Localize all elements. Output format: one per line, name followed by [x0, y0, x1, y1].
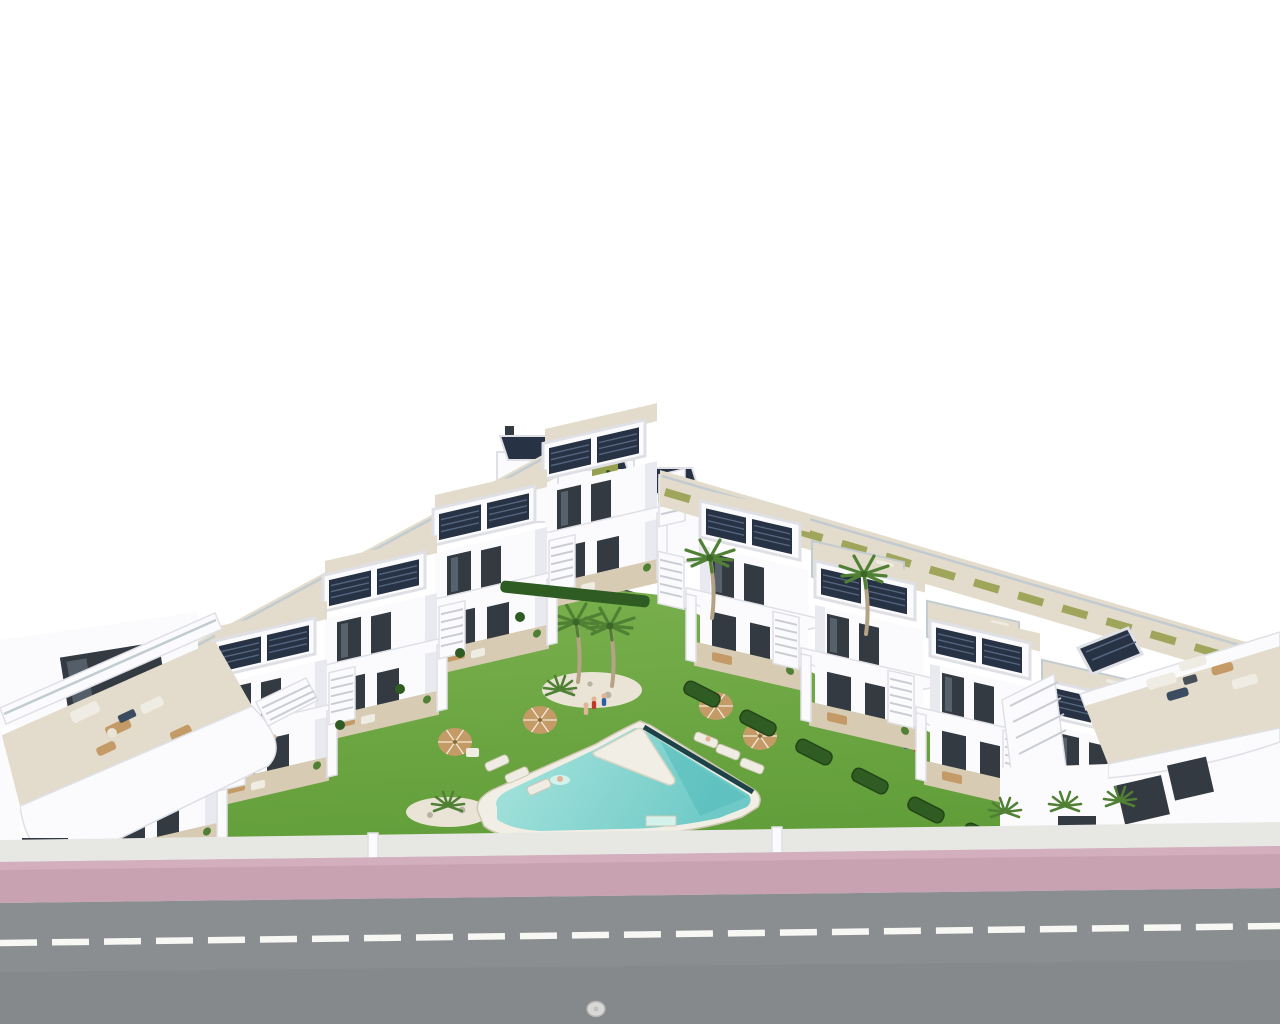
pool-step	[646, 816, 676, 826]
person	[601, 693, 606, 706]
swimmer	[557, 776, 563, 782]
shrub	[455, 648, 465, 658]
side-table	[466, 748, 479, 757]
rock	[587, 681, 592, 686]
shrub	[335, 720, 345, 730]
coffee-table	[107, 728, 117, 738]
manhole-detail	[594, 1007, 599, 1012]
wall-pillar	[772, 827, 782, 853]
rock	[427, 812, 433, 818]
parasol	[523, 706, 557, 734]
architectural-render	[0, 0, 1280, 1024]
person-on-lounger	[705, 736, 710, 741]
render-stage	[0, 0, 1280, 1024]
shrub	[515, 612, 525, 622]
shrub	[395, 684, 405, 694]
person-child	[583, 702, 588, 715]
person	[591, 696, 596, 709]
wall-pillar	[368, 833, 378, 859]
